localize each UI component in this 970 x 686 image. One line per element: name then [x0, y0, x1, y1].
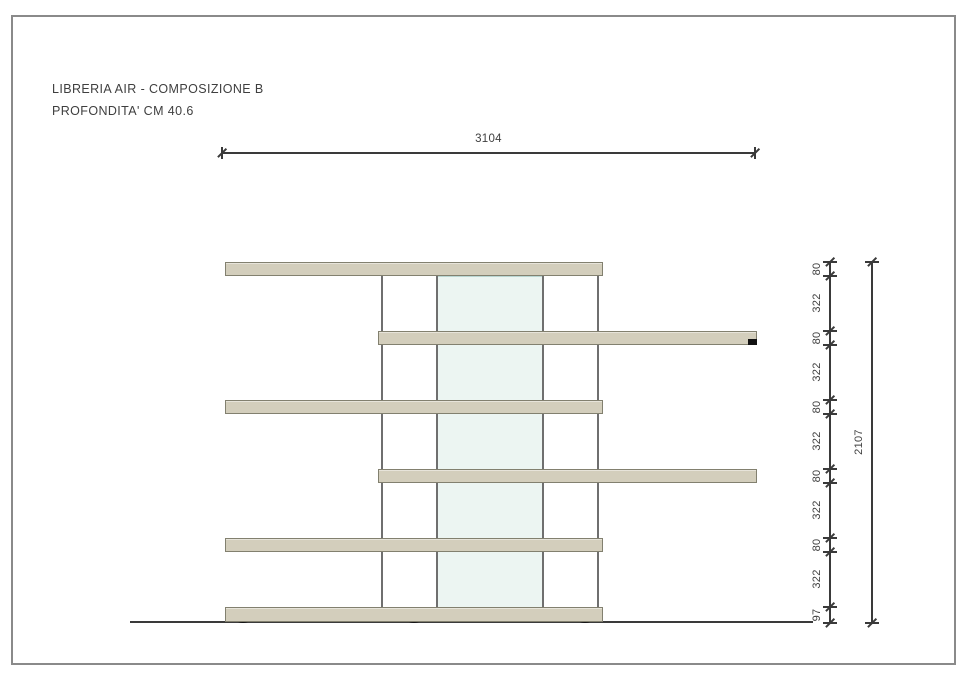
shelf-5	[225, 538, 603, 552]
height-segment-label: 97	[811, 609, 823, 622]
height-segment-label: 80	[811, 263, 823, 276]
support-rod	[542, 276, 544, 608]
support-rod	[597, 276, 599, 608]
shelf-end-cap	[748, 339, 757, 345]
height-segment-label: 322	[811, 500, 823, 519]
drawing-canvas: LIBRERIA AIR - COMPOSIZIONE B PROFONDITA…	[0, 0, 970, 686]
support-rod	[436, 276, 438, 608]
height-segment-label: 80	[811, 470, 823, 483]
height-segment-label: 322	[811, 362, 823, 381]
shelf-2	[378, 331, 757, 345]
shelf-top	[225, 262, 603, 276]
width-dimension-line	[222, 152, 755, 154]
total-height-line	[871, 262, 873, 623]
total-height-label: 2107	[853, 429, 865, 455]
height-chain-line	[829, 262, 831, 623]
title-block: LIBRERIA AIR - COMPOSIZIONE B PROFONDITA…	[52, 78, 264, 122]
width-dimension-label: 3104	[222, 133, 755, 145]
shelf-4	[378, 469, 757, 483]
drawing-title: LIBRERIA AIR - COMPOSIZIONE B	[52, 78, 264, 100]
height-segment-label: 322	[811, 431, 823, 450]
base-shelf	[225, 607, 603, 622]
back-panel	[438, 276, 542, 609]
drawing-subtitle: PROFONDITA' CM 40.6	[52, 100, 264, 122]
height-segment-label: 80	[811, 401, 823, 414]
height-segment-label: 80	[811, 332, 823, 345]
height-segment-label: 80	[811, 539, 823, 552]
shelf-3	[225, 400, 603, 414]
support-rod	[381, 276, 383, 608]
height-segment-label: 322	[811, 293, 823, 312]
height-segment-label: 322	[811, 569, 823, 588]
